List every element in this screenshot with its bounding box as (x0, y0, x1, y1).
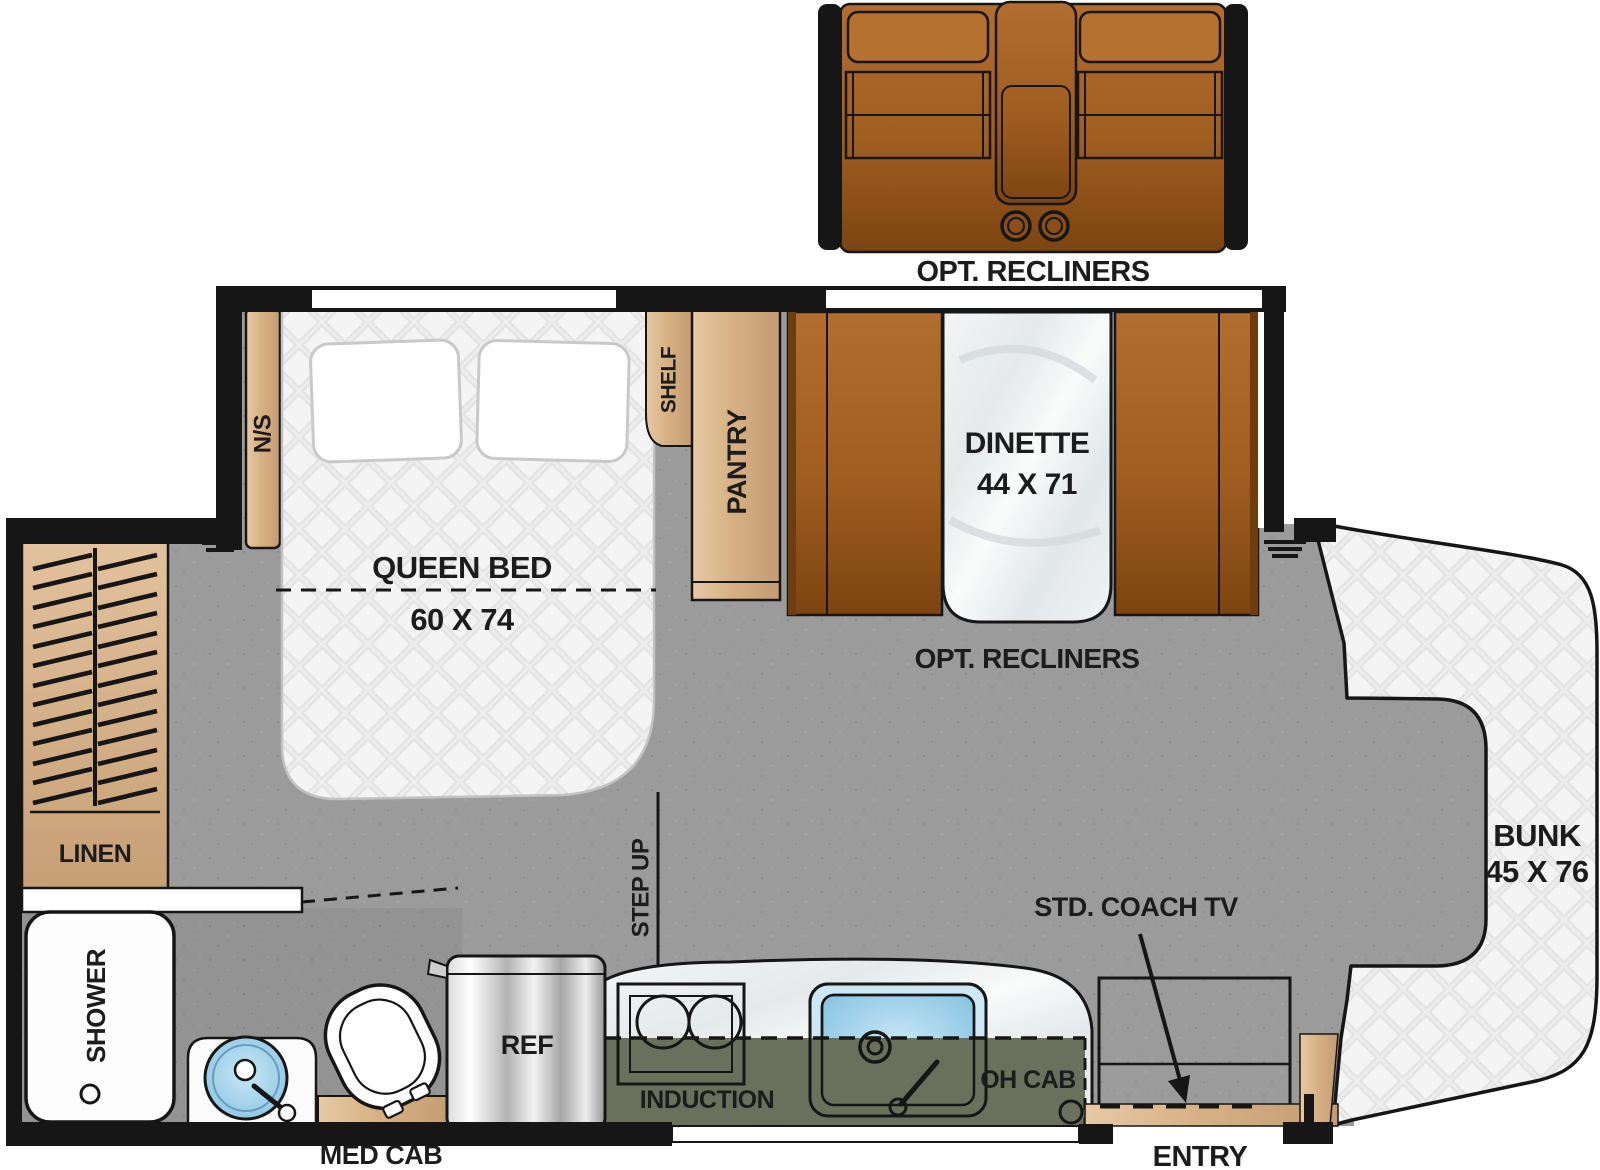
step-up-label: STEP UP (628, 838, 655, 937)
oh-cab-label: OH CAB (980, 1066, 1076, 1094)
induction-label: INDUCTION (640, 1086, 774, 1114)
shower-drain-icon (81, 1085, 99, 1103)
recliner-left-backrest (848, 12, 988, 62)
slideout-arm-right (1224, 4, 1248, 250)
bedroom-left-wall (216, 286, 242, 550)
pantry-label: PANTRY (722, 409, 752, 514)
pillow-left (310, 339, 462, 462)
dinette-bench-right (1115, 312, 1258, 615)
rear-top-wall (6, 518, 242, 544)
opt-recliners-upper-label: OPT. RECLINERS (916, 256, 1149, 288)
dinette-slide-opening (826, 290, 1262, 308)
cab-walkway-floor (1338, 698, 1486, 966)
recliner-right-backrest (1080, 12, 1220, 62)
cupholder-right-icon (1040, 212, 1068, 240)
coach-tv-label: STD. COACH TV (1034, 892, 1238, 922)
kitchen: INDUCTION OH CAB REF (428, 956, 1092, 1130)
queen-bed-label: QUEEN BED (372, 550, 552, 585)
dinette-size: 44 X 71 (977, 468, 1077, 501)
bunk-size: 45 X 76 (1485, 854, 1589, 889)
ref-label: REF (501, 1030, 554, 1060)
rv-floorplan-canvas: BUNK 45 X 76 N/S QUEEN BED 60 X 74 SHELF… (0, 0, 1600, 1170)
entry-door-post (1304, 1094, 1314, 1126)
linen-closet: LINEN (22, 540, 168, 890)
recliners-slideout: OPT. RECLINERS (818, 2, 1248, 288)
bottom-wall (6, 1122, 672, 1146)
nightstand-label: N/S (250, 414, 277, 453)
bath-faucet-knob (279, 1105, 295, 1121)
bedroom-window (312, 290, 616, 308)
dinette-label: DINETTE (965, 427, 1090, 460)
queen-bed-size: 60 X 74 (410, 602, 515, 637)
bath-sink-drain (235, 1060, 255, 1080)
dinette-bench-left-edge (788, 312, 796, 615)
shower-label: SHOWER (81, 948, 111, 1063)
cupholder-left-icon (1002, 212, 1030, 240)
kitchen-window (672, 1126, 1079, 1142)
bunk-label: BUNK (1493, 818, 1582, 853)
rv-floorplan: BUNK 45 X 76 N/S QUEEN BED 60 X 74 SHELF… (0, 0, 1600, 1170)
slideout-arm-left (818, 4, 842, 250)
recliner-console (996, 2, 1076, 204)
opt-recliners-lower-label: OPT. RECLINERS (915, 643, 1140, 674)
linen-label: LINEN (59, 840, 132, 868)
dinette-bench-left (788, 312, 942, 615)
right-wall (1264, 286, 1284, 532)
entry-wall-left (1079, 1124, 1113, 1144)
entry-label: ENTRY (1153, 1141, 1248, 1170)
dinette-bench-right-edge (1250, 312, 1258, 615)
shelf-label: SHELF (658, 346, 681, 413)
bunk-wall-block (1294, 518, 1336, 542)
pillow-right (476, 340, 629, 462)
bath-door (22, 888, 302, 912)
dinette-window-sliver (1258, 312, 1264, 528)
rear-outer-wall (6, 518, 22, 1146)
